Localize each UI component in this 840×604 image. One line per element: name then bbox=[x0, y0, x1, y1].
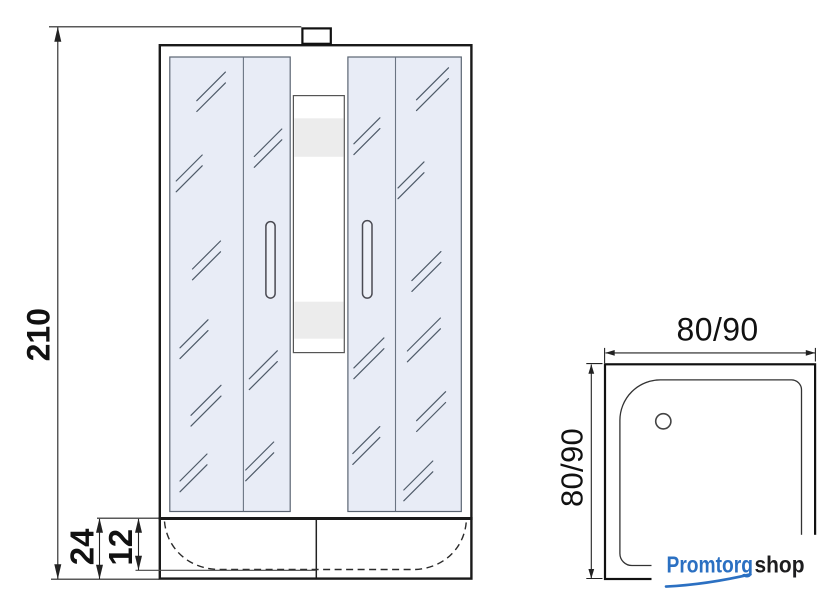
svg-text:shop: shop bbox=[755, 552, 805, 578]
svg-text:80/90: 80/90 bbox=[677, 311, 759, 347]
svg-text:Promtorg: Promtorg bbox=[667, 552, 754, 578]
svg-text:12: 12 bbox=[102, 529, 139, 566]
svg-text:80/90: 80/90 bbox=[554, 428, 589, 507]
svg-text:210: 210 bbox=[20, 308, 56, 361]
svg-text:24: 24 bbox=[63, 528, 100, 565]
